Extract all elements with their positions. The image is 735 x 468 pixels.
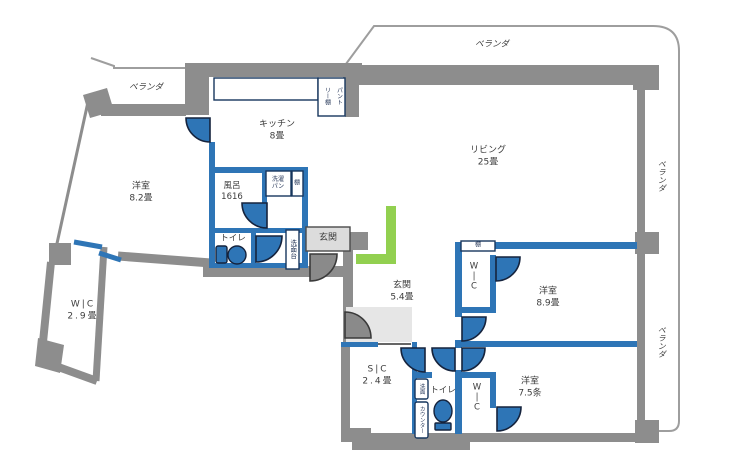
wic-ne-label: W | C: [470, 262, 478, 291]
pantry-shelf-label-left: リー棚: [323, 87, 330, 105]
kitchen-top-wall: [185, 63, 362, 77]
west-boundary-line: [56, 102, 88, 248]
hall-door-a: [401, 348, 425, 372]
wic-se-right-wall: [490, 378, 496, 408]
kitchen-counter: [214, 78, 318, 100]
outer-walls: [35, 63, 659, 450]
bedroom-hall-wall-c: [455, 370, 462, 434]
bath-door: [242, 203, 267, 228]
entrance-hall-label: 玄関 5.4畳: [390, 280, 413, 303]
living-label: リビング 25畳: [470, 145, 506, 168]
balcony-right-upper-label: ベランダ: [656, 160, 666, 192]
wash-counter-label-2: カウンター: [417, 406, 424, 434]
kitchen-label: キッチン 8畳: [259, 119, 295, 142]
wic-west-door-rail-1: [74, 242, 102, 247]
kitchen-left-pillar: [185, 67, 209, 115]
wic-se-label: W | C: [473, 383, 481, 412]
wic-west-corner-block: [35, 338, 64, 373]
bottom-wall-step: [352, 441, 470, 450]
pantry-side-wall: [345, 67, 359, 117]
floor-plan-drawing: [0, 0, 735, 468]
wic-ne-right-wall: [490, 255, 496, 307]
floor-plan: ベランダ ベランダ ベランダ ベランダ リビング 25畳 キッチン 8畳 洋室 …: [0, 0, 735, 468]
toilet-tank-icon: [216, 246, 227, 263]
lower-left-wall: [341, 344, 350, 442]
balcony-tl-bottom-wall: [101, 104, 186, 116]
bottom-wall: [367, 433, 637, 442]
hall-door-b: [432, 348, 455, 371]
balcony-top-left-label: ベランダ: [129, 82, 163, 93]
wic-ne-bottom-wall: [458, 307, 496, 313]
living-top-wall: [345, 65, 645, 85]
toilet2-top-wall-a: [412, 372, 432, 378]
wic-west-label: W|C 2.9畳: [67, 299, 98, 322]
bedroom-divider-wall: [462, 341, 637, 347]
bedroom-shelf-label: 棚: [475, 243, 481, 250]
entrance-box-label: 玄関: [319, 233, 337, 245]
balcony-outline-top-left: [91, 58, 185, 68]
pantry-shelf-label-right: パント: [335, 87, 342, 105]
toilet2-bowl-icon: [434, 400, 452, 422]
balcony-top-label: ベランダ: [475, 39, 509, 50]
toilet-bowl-icon: [228, 246, 246, 264]
balcony-right-lower-label: ベランダ: [656, 326, 666, 358]
bath-left-wall: [209, 142, 215, 268]
washstand-label: 洗面台: [288, 239, 295, 259]
sic-top-wall: [341, 342, 378, 347]
wic-west-pillar: [49, 243, 71, 265]
toilet2-base-icon: [435, 423, 451, 430]
bedroom-ne-label: 洋室 8.9畳: [536, 286, 559, 309]
kitchen-door: [186, 118, 210, 142]
bedroom-se-label: 洋室 7.5条: [518, 376, 541, 399]
toilet2-label: トイレ: [430, 385, 456, 396]
bath-label: 風呂 1616: [221, 181, 243, 203]
wash-counter-label-1: 洗面: [417, 384, 424, 395]
laundry-pan-label: 洗濯 パン: [272, 177, 284, 191]
toilet-label: トイレ: [220, 233, 246, 244]
shelf-label: 棚: [294, 181, 300, 188]
bedroom-west-label: 洋室 8.2畳: [129, 181, 152, 204]
right-wall-pillar: [635, 232, 659, 254]
bedroom-hall-wall-a: [455, 242, 462, 317]
sic-label: S|C 2.4畳: [362, 364, 393, 387]
top-right-corner-block: [633, 65, 659, 90]
washroom-door: [256, 236, 282, 262]
bedroom-se-door: [462, 348, 485, 371]
wic-se-top-wall: [458, 372, 496, 378]
wic-ne-door: [496, 257, 520, 281]
bottom-right-corner-block: [635, 420, 659, 443]
entrance-wall-stub: [350, 232, 368, 250]
bedroom-west-bottom-wall: [118, 256, 211, 263]
bedroom-ne-door: [462, 317, 486, 341]
wic-se-door: [497, 407, 521, 431]
bedroom-hall-wall-b: [455, 340, 462, 348]
